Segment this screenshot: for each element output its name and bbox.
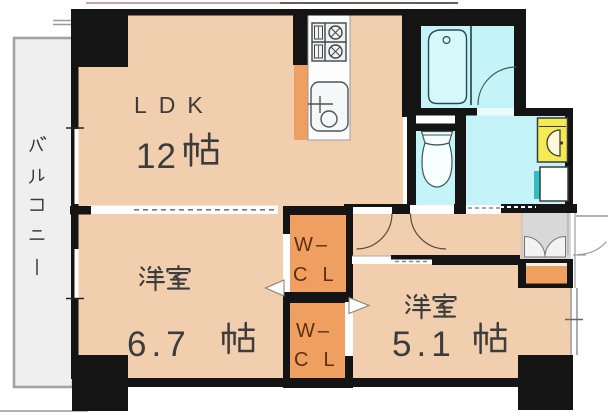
svg-text:W–: W– — [294, 234, 330, 256]
svg-text:CL: CL — [294, 349, 350, 371]
svg-text:CL: CL — [293, 264, 349, 286]
svg-text:W–: W– — [296, 320, 332, 342]
svg-text:5.1: 5.1 — [392, 325, 456, 364]
svg-text:6.7: 6.7 — [127, 325, 191, 364]
svg-text:12: 12 — [136, 137, 177, 176]
svg-text:LDK: LDK — [134, 92, 215, 118]
